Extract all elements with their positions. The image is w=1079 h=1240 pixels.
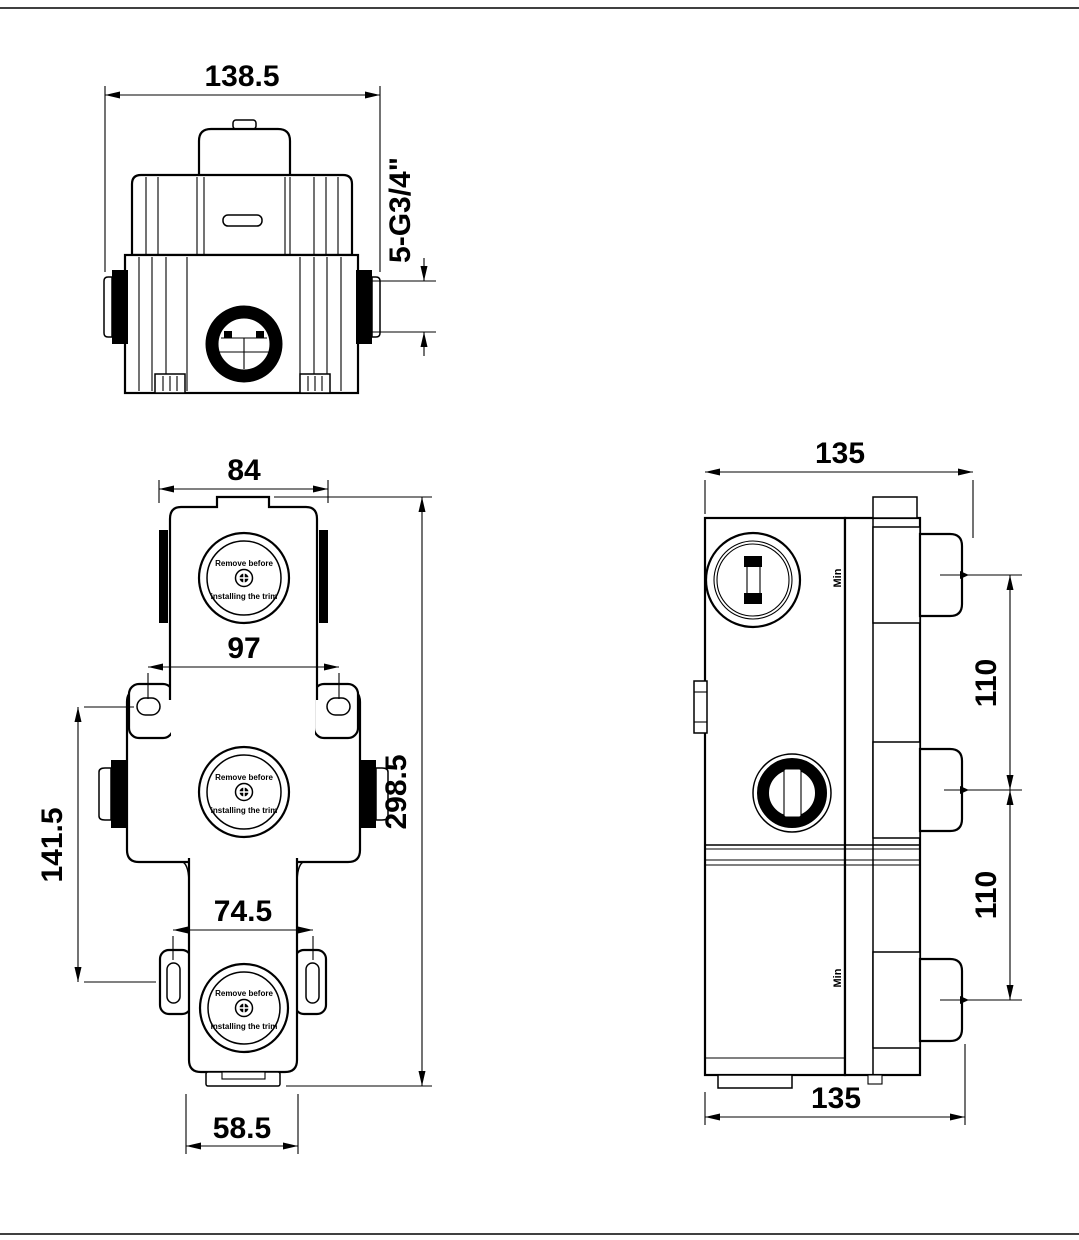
mid-port-base xyxy=(873,742,920,838)
min-label-top: Min xyxy=(832,568,844,587)
dim-label-5-g34: 5-G3/4" xyxy=(384,157,417,263)
dim-label-135-bottom: 135 xyxy=(811,1082,861,1115)
technical-drawing-page: 138.5 5-G3/4" xyxy=(0,0,1079,1240)
dim-label-135-top: 135 xyxy=(815,437,865,470)
left-side-port xyxy=(104,270,128,344)
valve-rough-in-drawing: 138.5 5-G3/4" xyxy=(0,0,1079,1240)
side-view-body-outline: Min Min xyxy=(694,497,969,1088)
dim-label-110-upper: 110 xyxy=(970,659,1003,707)
lower-right-ear-slot xyxy=(306,963,319,1003)
bottom-port-base xyxy=(873,952,920,1048)
dim-label-298-5: 298.5 xyxy=(380,754,413,829)
dim-label-110-lower: 110 xyxy=(970,871,1003,919)
top-view: 138.5 5-G3/4" xyxy=(104,60,436,393)
left-gasket-strip xyxy=(159,530,168,623)
lower-left-ear-slot xyxy=(167,963,180,1003)
front-view: Remove before installing the trim Remove… xyxy=(36,454,432,1154)
top-tab xyxy=(873,497,917,518)
dimension-bottom-width: 58.5 xyxy=(186,1094,298,1154)
cap-text-line1: Remove before xyxy=(215,773,273,782)
cap-text-line2: installing the trim xyxy=(211,592,278,601)
dome-bump xyxy=(233,120,256,129)
side-left-bracket xyxy=(694,681,707,733)
dim-label-138-5: 138.5 xyxy=(204,60,279,93)
top-view-body-outline xyxy=(104,120,380,393)
dim-label-141-5: 141.5 xyxy=(36,807,69,882)
dim-label-84: 84 xyxy=(227,454,261,487)
dim-label-97: 97 xyxy=(227,632,260,665)
side-bottom-foot xyxy=(718,1075,792,1088)
top-slot xyxy=(223,215,262,226)
dim-label-58-5: 58.5 xyxy=(213,1112,271,1145)
upper-right-ear-slot xyxy=(327,698,350,715)
side-mid-port-face xyxy=(753,754,831,832)
dim-label-74-5: 74.5 xyxy=(214,895,272,928)
min-label-bottom: Min xyxy=(832,968,844,987)
dome-cap xyxy=(199,129,290,175)
upper-left-ear-slot xyxy=(137,698,160,715)
side-view: Min Min 135 110 110 xyxy=(694,437,1022,1125)
top-port-base xyxy=(873,527,920,623)
cap-text-line1: Remove before xyxy=(215,989,273,998)
cap-text-line1: Remove before xyxy=(215,559,273,568)
side-bottom-stub xyxy=(868,1075,882,1084)
cap-text-line2: installing the trim xyxy=(211,806,278,815)
right-gasket-strip xyxy=(319,530,328,623)
dimension-front-top-width: 84 xyxy=(159,454,328,503)
mid-left-port xyxy=(99,760,127,828)
cap-text-line2: installing the trim xyxy=(211,1022,278,1031)
